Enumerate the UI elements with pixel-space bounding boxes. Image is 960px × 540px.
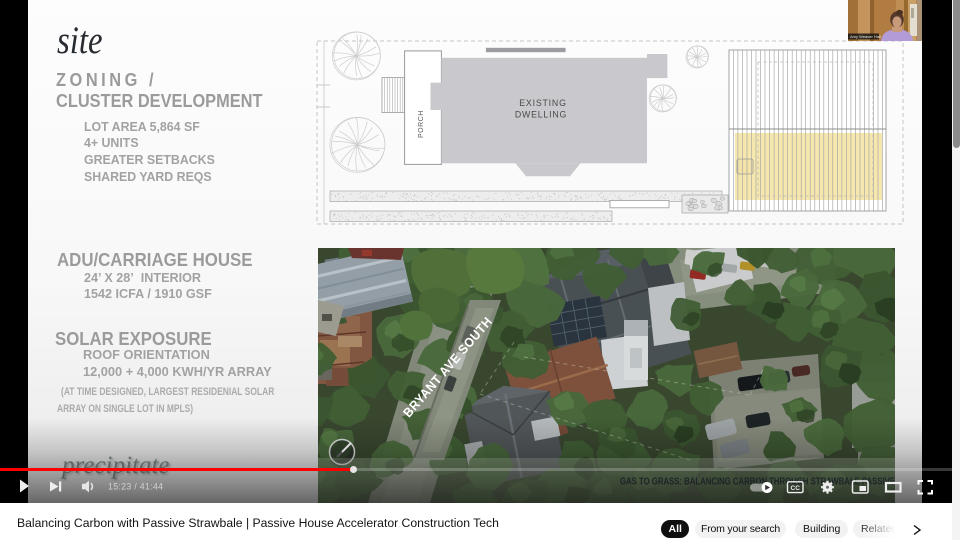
svg-text:Amy Weaver Hall: Amy Weaver Hall [850,34,881,39]
svg-text:15:23 / 41:44: 15:23 / 41:44 [108,482,163,492]
svg-text:EXISTING: EXISTING [519,98,566,108]
svg-text:DWELLING: DWELLING [515,110,567,120]
svg-text:PORCH: PORCH [418,110,425,138]
svg-text:CC: CC [791,485,801,492]
